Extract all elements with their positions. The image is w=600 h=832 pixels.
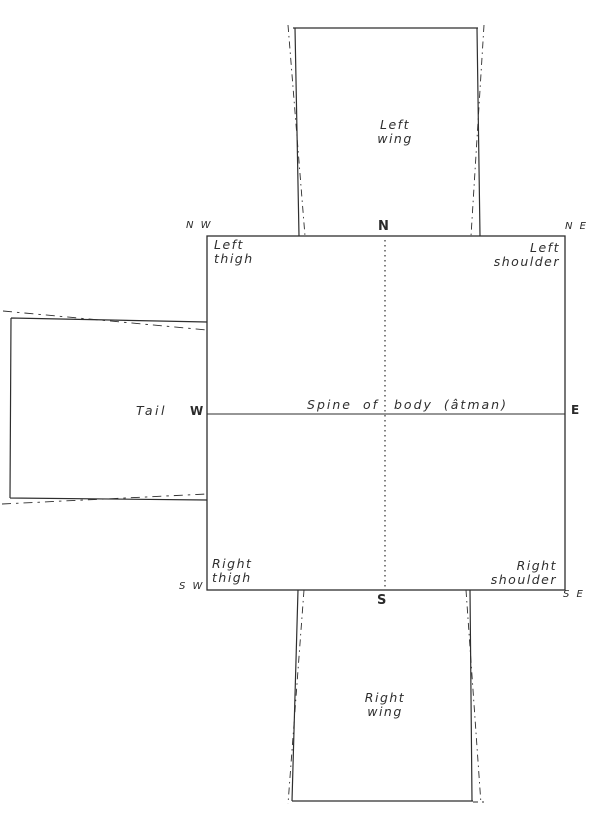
compass-s-label: S — [377, 593, 388, 608]
diagram-linework — [0, 0, 600, 832]
compass-e-label: E — [571, 403, 581, 417]
right-wing-dashed-right — [466, 590, 481, 804]
right-thigh-label-line2: thigh — [212, 570, 252, 585]
right-shoulder-label-line2: shoulder — [491, 572, 557, 587]
left-wing-label-line1: Left — [380, 117, 410, 132]
tail-dashed-top — [3, 311, 207, 330]
right-shoulder-label: Right shoulder — [477, 559, 557, 587]
compass-sw-label: S W — [179, 581, 204, 592]
right-wing-label-line2: wing — [367, 704, 403, 719]
compass-n-label: N — [378, 219, 391, 234]
left-shoulder-label: Left shoulder — [480, 241, 560, 269]
right-thigh-label: Right thigh — [212, 557, 252, 585]
tail-outline — [10, 318, 207, 500]
right-wing-label: Right wing — [343, 691, 427, 719]
left-thigh-label-line2: thigh — [214, 251, 254, 266]
spine-label-right: body (âtman) — [394, 398, 508, 412]
left-thigh-label-line1: Left — [214, 237, 244, 252]
compass-w-label: W — [190, 404, 205, 418]
altar-diagram: Left wing Right wing Tail Left thigh Lef… — [0, 0, 600, 832]
body-square — [207, 236, 565, 590]
left-wing-dashed-left — [288, 25, 305, 236]
compass-se-label: S E — [563, 589, 585, 600]
left-shoulder-label-line2: shoulder — [494, 254, 560, 269]
tail-label: Tail — [136, 404, 167, 418]
compass-ne-label: N E — [565, 221, 588, 232]
right-shoulder-label-line1: Right — [517, 558, 557, 573]
spine-label-left: Spine of — [295, 398, 379, 412]
left-wing-label-line2: wing — [377, 131, 413, 146]
right-thigh-label-line1: Right — [212, 556, 252, 571]
right-wing-label-line1: Right — [365, 690, 405, 705]
left-shoulder-label-line1: Left — [530, 240, 560, 255]
right-wing-dashed-left — [288, 590, 304, 804]
left-wing-label: Left wing — [353, 118, 437, 146]
compass-nw-label: N W — [186, 220, 213, 231]
left-thigh-label: Left thigh — [214, 238, 254, 266]
